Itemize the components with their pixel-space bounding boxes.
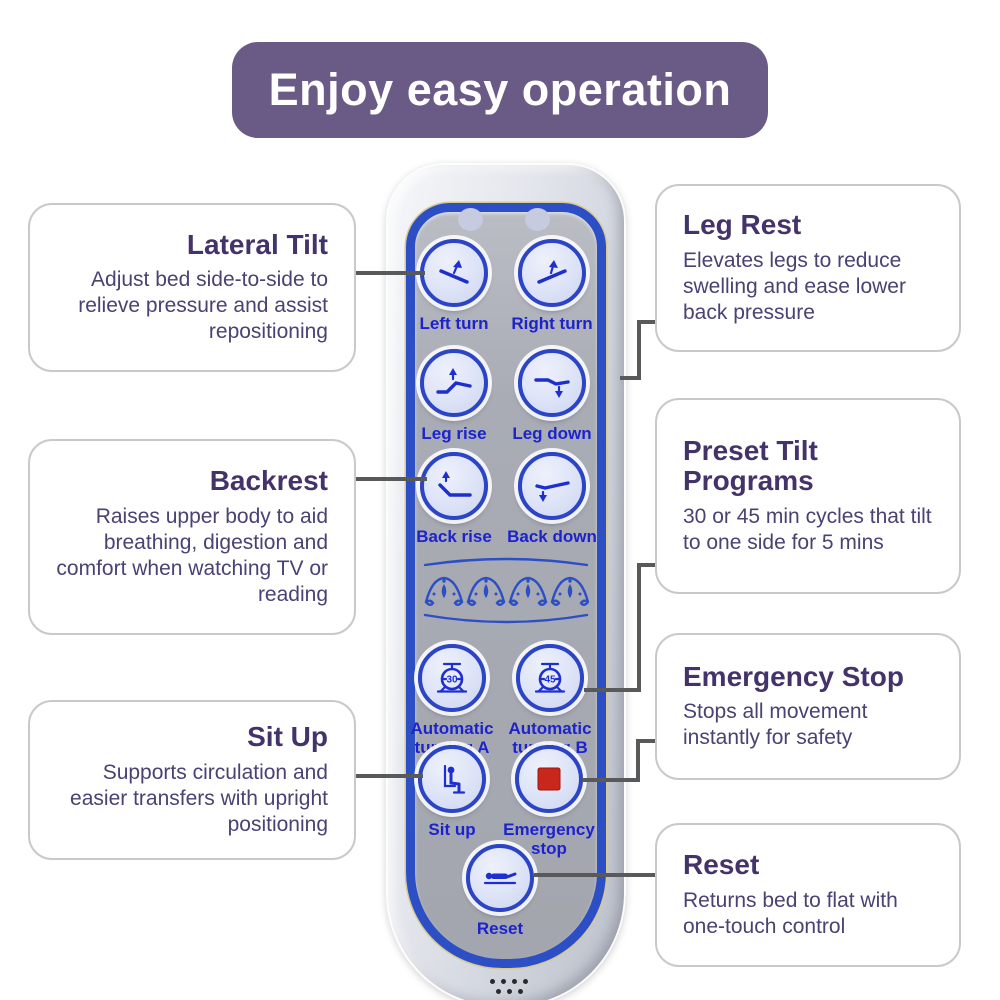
callout-title: Leg Rest bbox=[683, 210, 933, 240]
banner-title: Enjoy easy operation bbox=[269, 64, 732, 116]
callout-title: Emergency Stop bbox=[683, 662, 933, 692]
indicator-light-left bbox=[458, 208, 483, 231]
automatic-turning-a-button[interactable]: 30 bbox=[418, 644, 486, 712]
reset-button[interactable] bbox=[466, 844, 534, 912]
callout-body: Stops all movement instantly for safety bbox=[683, 699, 933, 751]
back-rise-icon bbox=[434, 469, 474, 503]
connector-emergency-vertical bbox=[636, 739, 640, 782]
button-label: Right turn bbox=[504, 314, 600, 333]
button-label: Leg down bbox=[504, 424, 600, 443]
connector-leg-rest-bottom bbox=[620, 376, 641, 380]
sit-up-icon bbox=[432, 761, 472, 797]
emergency-stop-button[interactable] bbox=[515, 745, 583, 813]
right-turn-cell: Right turn bbox=[504, 239, 600, 333]
reset-bed-icon bbox=[480, 860, 520, 896]
callout-leg-rest: Leg Rest Elevates legs to reduce swellin… bbox=[655, 184, 961, 352]
back-rise-button[interactable] bbox=[420, 452, 488, 520]
timer-30-icon: 30 bbox=[432, 660, 472, 696]
left-turn-cell: Left turn bbox=[406, 239, 502, 333]
connector-sit-up bbox=[355, 774, 423, 778]
emergency-stop-icon bbox=[529, 761, 569, 797]
button-label: Leg rise bbox=[406, 424, 502, 443]
back-down-icon bbox=[532, 469, 572, 503]
left-turn-icon bbox=[434, 256, 474, 290]
callout-reset: Reset Returns bed to flat with one-touch… bbox=[655, 823, 961, 967]
callout-body: Elevates legs to reduce swelling and eas… bbox=[683, 248, 933, 326]
sit-up-button[interactable] bbox=[418, 745, 486, 813]
ornament-band bbox=[423, 550, 589, 634]
button-label: Left turn bbox=[406, 314, 502, 333]
infographic-page: Enjoy easy operation bbox=[0, 0, 1000, 1000]
left-turn-button[interactable] bbox=[420, 239, 488, 307]
leg-rise-cell: Leg rise bbox=[406, 349, 502, 443]
automatic-turning-b-cell: 45 Automatic turning B bbox=[502, 644, 598, 757]
connector-preset-bottom bbox=[584, 688, 641, 692]
leg-down-cell: Leg down bbox=[504, 349, 600, 443]
callout-lateral-tilt: Lateral Tilt Adjust bed side-to-side to … bbox=[28, 203, 356, 372]
callout-title: Reset bbox=[683, 850, 933, 880]
sit-up-cell: Sit up bbox=[404, 745, 500, 839]
callout-preset-tilt-programs: Preset Tilt Programs 30 or 45 min cycles… bbox=[655, 398, 961, 594]
emergency-stop-cell: Emergency stop bbox=[501, 745, 597, 858]
svg-text:30: 30 bbox=[446, 675, 458, 686]
connector-leg-rest-vertical bbox=[637, 320, 641, 380]
svg-text:45: 45 bbox=[544, 675, 556, 686]
leg-down-button[interactable] bbox=[518, 349, 586, 417]
leg-rise-icon bbox=[434, 366, 474, 400]
callout-title: Backrest bbox=[56, 466, 328, 496]
right-turn-icon bbox=[532, 256, 572, 290]
back-down-button[interactable] bbox=[518, 452, 586, 520]
back-rise-cell: Back rise bbox=[406, 452, 502, 546]
callout-title: Lateral Tilt bbox=[56, 230, 328, 260]
callout-body: Raises upper body to aid breathing, dige… bbox=[56, 504, 328, 608]
button-label: Sit up bbox=[404, 820, 500, 839]
callout-sit-up: Sit Up Supports circulation and easier t… bbox=[28, 700, 356, 860]
leg-rise-button[interactable] bbox=[420, 349, 488, 417]
right-turn-button[interactable] bbox=[518, 239, 586, 307]
speaker-grille bbox=[487, 979, 531, 999]
callout-title: Sit Up bbox=[56, 722, 328, 752]
timer-45-icon: 45 bbox=[530, 660, 570, 696]
button-label: Reset bbox=[452, 919, 548, 938]
connector-lateral-tilt bbox=[355, 271, 425, 275]
automatic-turning-b-button[interactable]: 45 bbox=[516, 644, 584, 712]
connector-backrest bbox=[355, 477, 427, 481]
callout-body: Returns bed to flat with one-touch contr… bbox=[683, 888, 933, 940]
callout-body: Supports circulation and easier transfer… bbox=[56, 760, 328, 838]
callout-body: Adjust bed side-to-side to relieve press… bbox=[56, 267, 328, 345]
button-label: Back down bbox=[504, 527, 600, 546]
callout-title: Preset Tilt Programs bbox=[683, 436, 933, 496]
reset-cell: Reset bbox=[452, 844, 548, 938]
leg-down-icon bbox=[532, 366, 572, 400]
connector-preset-vertical bbox=[637, 563, 641, 692]
banner: Enjoy easy operation bbox=[232, 42, 768, 138]
back-down-cell: Back down bbox=[504, 452, 600, 546]
connector-emergency-bottom bbox=[582, 778, 640, 782]
indicator-light-right bbox=[525, 208, 550, 231]
callout-body: 30 or 45 min cycles that tilt to one sid… bbox=[683, 504, 933, 556]
automatic-turning-a-cell: 30 Automatic turning A bbox=[404, 644, 500, 757]
callout-backrest: Backrest Raises upper body to aid breath… bbox=[28, 439, 356, 635]
button-label: Back rise bbox=[406, 527, 502, 546]
connector-reset bbox=[534, 873, 657, 877]
callout-emergency-stop: Emergency Stop Stops all movement instan… bbox=[655, 633, 961, 780]
